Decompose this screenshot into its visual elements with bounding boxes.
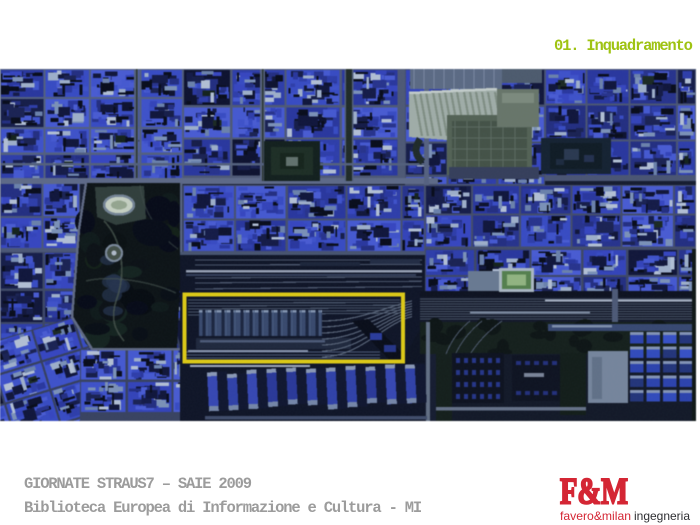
svg-text:ingegneria: ingegneria — [634, 509, 690, 523]
svg-text:F&M: F&M — [560, 472, 628, 513]
svg-text:favero&milan: favero&milan — [560, 509, 631, 523]
